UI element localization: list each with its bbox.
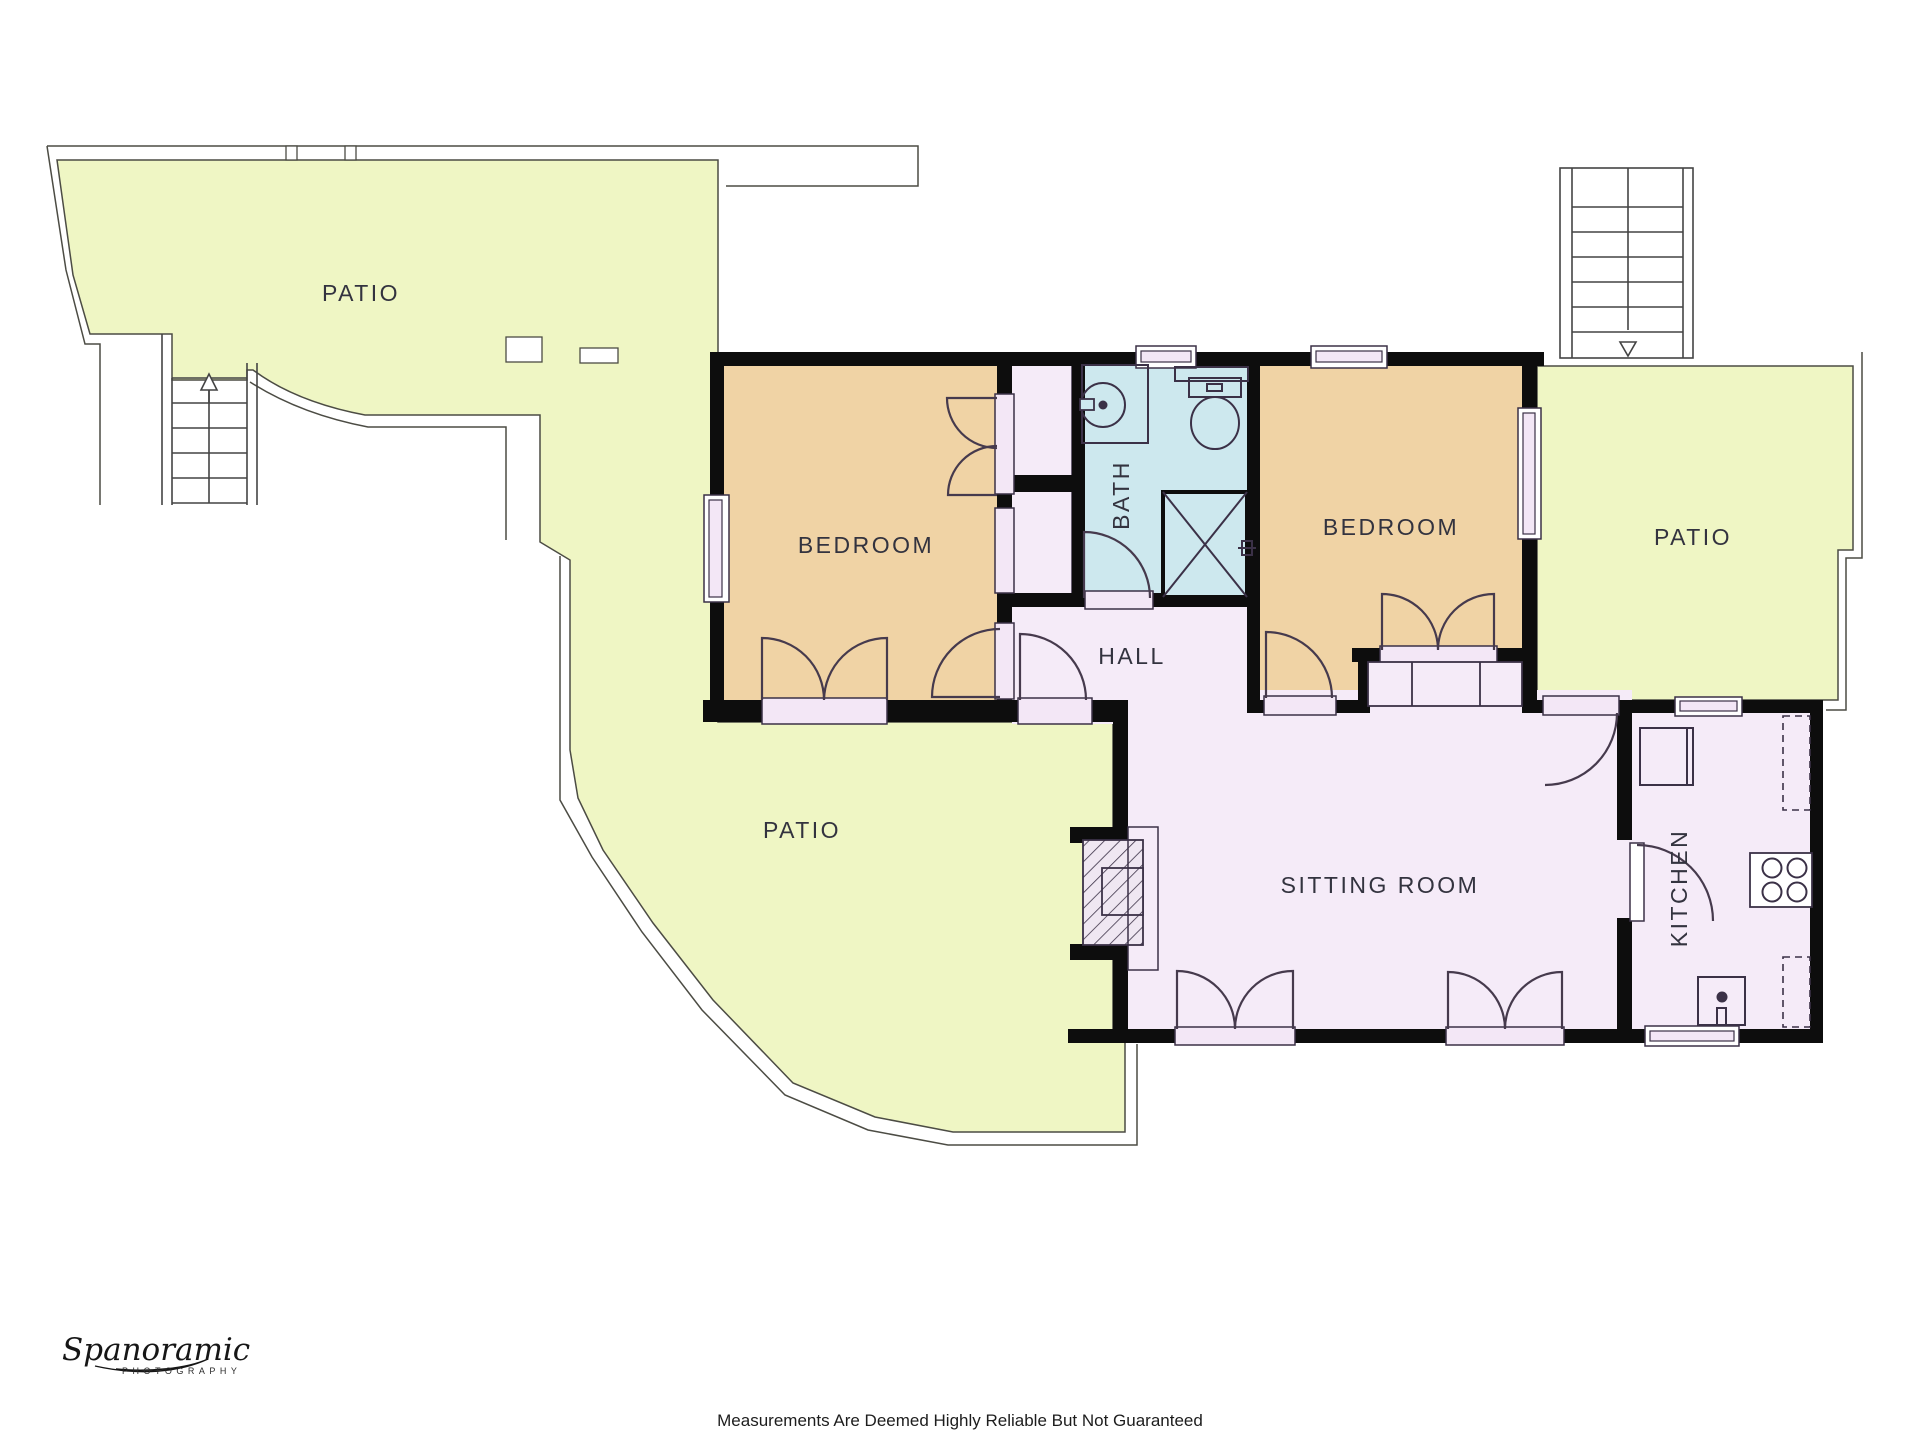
bedroom1-west-window [704,495,729,602]
patio-edge-notch-2 [345,146,356,160]
patio-top-label: PATIO [322,280,400,306]
shower [1163,492,1256,597]
bedroom2-east-window [1518,408,1541,539]
closet1-lower-door-panel [995,508,1014,593]
bedroom2-top-window [1311,346,1387,368]
bedroom1-patio-door-sill [762,698,887,724]
photographer-logo: Spanoramic PHOTOGRAPHY [62,1332,250,1376]
patio-step-gap [580,348,618,363]
bedroom1-hall-door-sill [995,623,1014,699]
stairs-down-right [1560,168,1693,358]
bath-door-sill [1085,591,1153,609]
logo-subtitle-text: PHOTOGRAPHY [122,1366,241,1376]
sitting-patio-door-sill [1543,696,1619,715]
kitchen-south-window [1645,1026,1739,1046]
patio-pillar-notch [506,337,542,362]
stairs-right-outline [1560,168,1693,358]
bath-sink-tap [1080,399,1094,410]
bedroom2-door-sill [1264,696,1336,715]
hob [1750,853,1812,907]
wall-chimney-stub-bottom [1070,944,1115,960]
floorplan-page: PATIO PATIO PATIO BEDROOM BEDROOM HALL S… [0,0,1920,1440]
closet1-upper-door-panel [995,394,1014,494]
logo-script-text: Spanoramic [62,1332,250,1368]
wall-kitchen-west-lower [1617,918,1632,1043]
disclaimer-text: Measurements Are Deemed Highly Reliable … [717,1411,1203,1430]
hall-entrance-sill [1018,698,1092,724]
patio-left-label: PATIO [763,817,841,843]
bedroom2-wardrobe [1368,662,1522,706]
patio-right-label: PATIO [1654,524,1732,550]
french-door2-sill [1446,1027,1564,1045]
sitting-floor [1113,690,1632,1043]
hall-label: HALL [1098,643,1166,669]
wall-closet-jamb [997,494,1012,506]
kitchen-north-window [1675,697,1742,716]
french-door1-sill [1175,1027,1295,1045]
bath-sink-drain [1099,401,1108,410]
wall-north [710,352,1544,366]
bedroom-left-label: BEDROOM [798,532,934,558]
floorplan-drawing: PATIO PATIO PATIO BEDROOM BEDROOM HALL S… [0,0,1920,1440]
kitchen-label: KITCHEN [1666,829,1692,947]
patio-edge-notch-1 [286,146,297,160]
chimney-flue [1102,868,1143,915]
wall-kitchen-west-upper [1617,700,1632,840]
bedroom-right-label: BEDROOM [1323,514,1459,540]
bath-label: BATH [1108,460,1134,530]
wall-closet-divider [1010,475,1072,492]
sitting-room-label: SITTING ROOM [1281,872,1480,898]
